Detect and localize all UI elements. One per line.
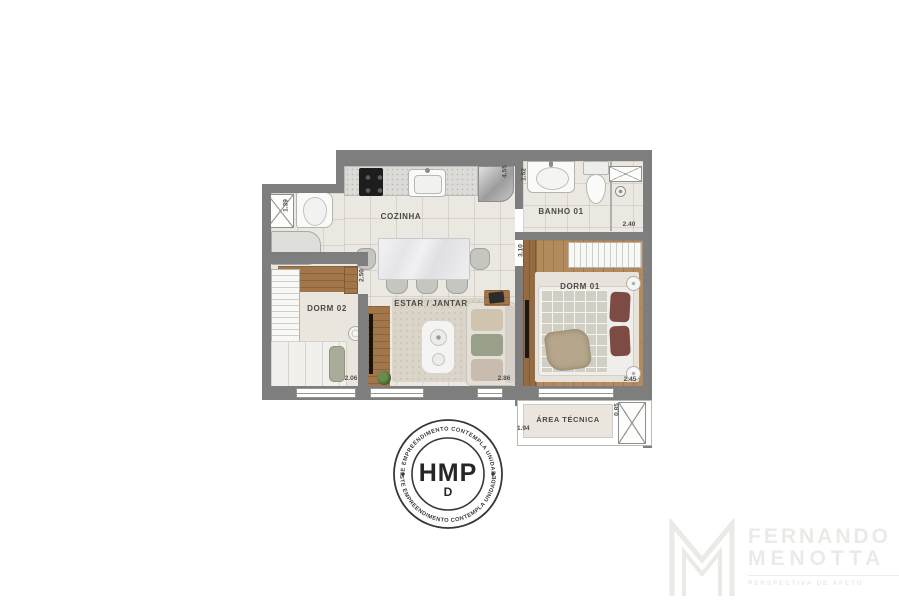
cooktop bbox=[359, 168, 383, 196]
kitchen-sink bbox=[408, 169, 446, 197]
wall-laundry-top bbox=[262, 184, 344, 193]
stamp-dot-left bbox=[401, 472, 404, 475]
duct-shaft-box bbox=[609, 166, 642, 182]
coffee-table bbox=[421, 320, 455, 374]
dim-bath-width: 2.40 bbox=[615, 221, 643, 228]
bathroom-faucet bbox=[549, 161, 553, 167]
living-tv bbox=[369, 314, 373, 374]
dorm01-throw-blanket bbox=[543, 327, 592, 373]
sink-faucet bbox=[425, 168, 430, 173]
brand-name-line2: MENOTTA bbox=[748, 548, 899, 570]
dim-bath-sink: 1.52 bbox=[521, 163, 528, 187]
dorm02-window bbox=[296, 388, 356, 398]
bathroom-sink-basin bbox=[536, 167, 569, 190]
dim-hall-wall: 4.55 bbox=[502, 160, 509, 184]
living-window-small bbox=[477, 388, 503, 398]
wall-left bbox=[262, 184, 271, 400]
dorm01-pillow-1 bbox=[609, 291, 631, 322]
dim-area-tecnica-width: 1.94 bbox=[517, 425, 545, 432]
hmp-stamp-svg: ESTE EMPREENDIMENTO CONTEMPLA UNIDADES E… bbox=[390, 416, 506, 532]
sofa-cushion-1 bbox=[471, 309, 503, 331]
brand-watermark: FERNANDO MENOTTA PERSPECTIVA DE AFETO bbox=[664, 518, 899, 598]
sofa bbox=[466, 302, 516, 386]
living-window bbox=[370, 388, 424, 398]
refrigerator bbox=[478, 166, 514, 202]
water-heater-box bbox=[267, 194, 294, 228]
brand-names: FERNANDO MENOTTA PERSPECTIVA DE AFETO bbox=[748, 526, 899, 587]
brand-tagline: PERSPECTIVA DE AFETO bbox=[748, 580, 899, 587]
wall-bathroom-bottom bbox=[515, 232, 652, 240]
dim-estar-width: 2.86 bbox=[490, 375, 518, 382]
condenser-box bbox=[618, 402, 646, 444]
shower-head bbox=[615, 186, 626, 197]
toilet bbox=[583, 161, 609, 175]
dorm01-nightstand-top bbox=[626, 276, 641, 291]
wall-dorm02-top bbox=[262, 252, 362, 264]
label-estar-jantar: ESTAR / JANTAR bbox=[381, 299, 481, 308]
dim-area-tecnica-depth: 0.85 bbox=[614, 398, 621, 422]
brand-divider bbox=[748, 575, 899, 576]
label-banho01: BANHO 01 bbox=[521, 207, 601, 216]
sink-basin bbox=[414, 175, 442, 194]
tank-basin bbox=[303, 197, 327, 226]
stamp-title: HMP bbox=[419, 459, 478, 487]
bathroom-sink-counter bbox=[527, 161, 575, 193]
dorm02-door-leaf bbox=[344, 266, 358, 294]
wall-top-bathroom bbox=[515, 150, 652, 161]
sofa-back bbox=[505, 305, 515, 383]
dim-dorm02-depth: 2.50 bbox=[359, 264, 366, 288]
wall-top-kitchen bbox=[336, 150, 520, 166]
hmp-stamp: ESTE EMPREENDIMENTO CONTEMPLA UNIDADES E… bbox=[390, 416, 506, 532]
label-dorm02: DORM 02 bbox=[287, 304, 367, 313]
brand-name-line1: FERNANDO bbox=[748, 526, 899, 548]
dorm01-sliding-door bbox=[538, 388, 614, 398]
dining-table bbox=[378, 238, 470, 280]
label-cozinha: COZINHA bbox=[361, 212, 441, 221]
dim-laundry-depth: 1.39 bbox=[283, 194, 290, 218]
laundry-tank-sink bbox=[296, 192, 333, 228]
brand-monogram-icon bbox=[664, 518, 740, 598]
dim-dorm02-width: 2.06 bbox=[337, 375, 365, 382]
wall-dorm01-left bbox=[515, 266, 523, 386]
stamp-dot-right bbox=[491, 472, 494, 475]
coffee-table-tray-1 bbox=[430, 329, 447, 346]
dorm01-pillow-2 bbox=[609, 325, 631, 356]
dim-dorm01-depth: 3.10 bbox=[518, 239, 525, 263]
dorm01-tv bbox=[525, 300, 529, 358]
laptop bbox=[488, 291, 504, 304]
dining-chair-right bbox=[470, 248, 490, 270]
label-area-tecnica: ÁREA TÉCNICA bbox=[518, 415, 618, 424]
dorm01-wardrobe bbox=[568, 242, 642, 268]
floor-plan-canvas: COZINHA BANHO 01 DORM 02 DORM 01 ESTAR /… bbox=[0, 0, 899, 600]
label-dorm01: DORM 01 bbox=[540, 282, 620, 291]
sofa-cushion-2 bbox=[471, 334, 503, 356]
dim-dorm01-width: 2.45 bbox=[616, 376, 644, 383]
coffee-table-tray-2 bbox=[432, 353, 445, 366]
stamp-logo-glyph: D bbox=[444, 485, 453, 499]
plant bbox=[377, 371, 391, 385]
